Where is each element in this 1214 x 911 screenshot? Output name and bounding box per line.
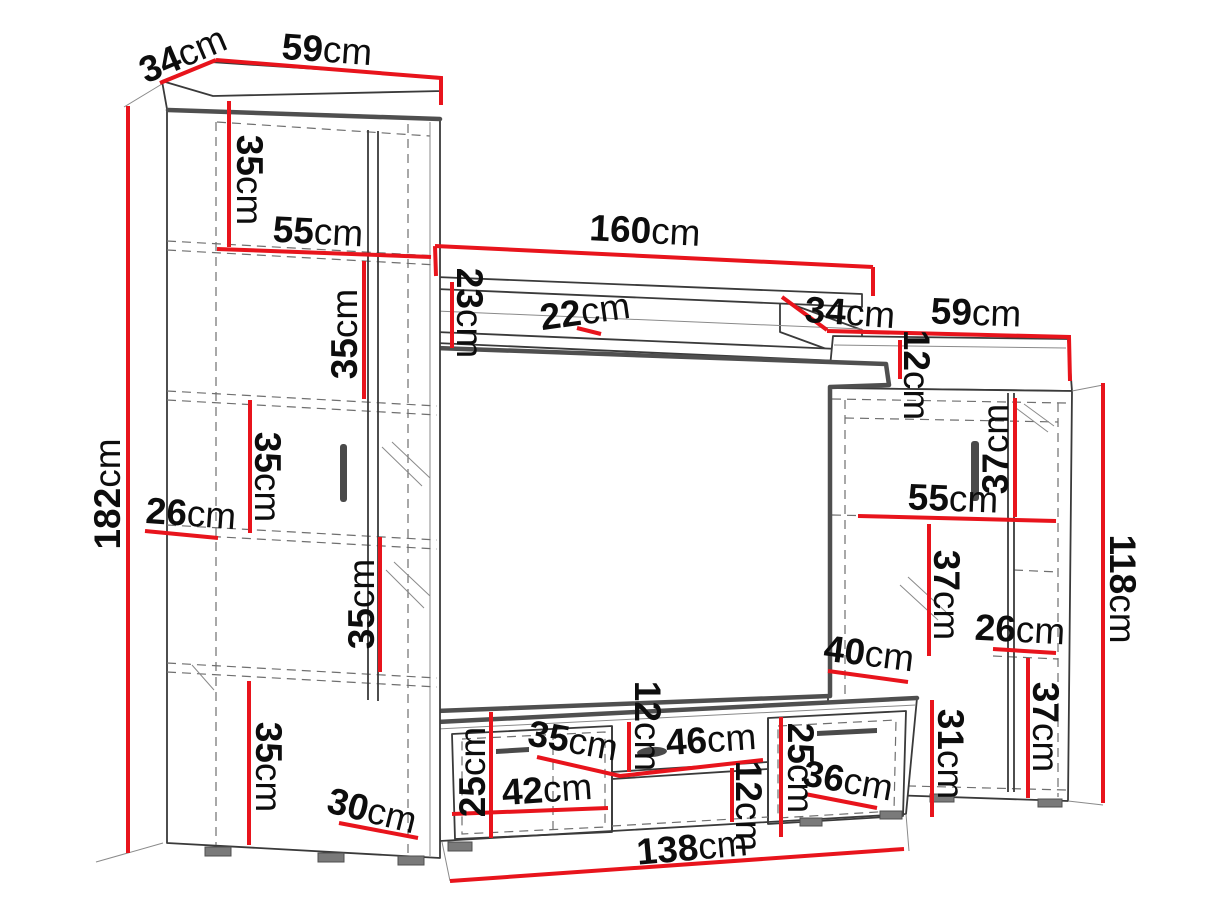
dim-label-23: 23cm: [449, 268, 490, 358]
stand-foot-right: [880, 811, 902, 819]
dim-label-59-left: 59cm: [280, 26, 373, 73]
dim-label-35-c: 35cm: [247, 432, 288, 522]
right-cabinet-foot-right: [1038, 799, 1062, 807]
left-cabinet-foot-left: [205, 847, 231, 856]
dim-label-25-right: 25cm: [780, 723, 821, 813]
diagram-canvas: 34cm 59cm 35cm 55cm 35cm 182cm 26cm 35cm…: [0, 0, 1214, 911]
stand-foot-left: [448, 842, 472, 851]
dim-label-12-b: 12cm: [627, 681, 668, 771]
left-cabinet-foot-mid: [318, 853, 344, 862]
dim-label-55-right: 55cm: [907, 476, 999, 520]
dim-label-26-left: 26cm: [144, 490, 237, 537]
dim-label-34-right: 34cm: [803, 289, 896, 336]
dim-label-12-a: 12cm: [896, 330, 937, 420]
tv-panel-outline: [436, 348, 889, 711]
dim-label-118: 118cm: [1102, 534, 1143, 643]
dim-label-55-left: 55cm: [272, 209, 365, 255]
dim-label-182: 182cm: [87, 438, 128, 549]
dim-label-31: 31cm: [930, 709, 971, 799]
dim-label-42: 42cm: [500, 766, 593, 813]
left-cabinet-foot-right: [398, 856, 424, 865]
left-cabinet: [162, 62, 442, 865]
dim-label-25-left: 25cm: [452, 727, 493, 817]
dim-label-37-b: 37cm: [926, 550, 967, 640]
wall-shelf-top-board: [436, 277, 862, 307]
dim-label-35-e: 35cm: [248, 722, 289, 812]
dim-label-35-d: 35cm: [341, 559, 382, 649]
dim-label-160: 160cm: [588, 207, 701, 254]
dim-label-26-right: 26cm: [974, 607, 1067, 653]
stand-foot-mid: [800, 818, 822, 826]
left-cabinet-door-handle: [340, 444, 347, 502]
dim-label-35-a: 35cm: [229, 135, 270, 225]
tv-panel: [436, 348, 889, 711]
dim-label-59-right: 59cm: [930, 290, 1022, 334]
dim-label-46: 46cm: [664, 716, 757, 763]
furniture-dimension-diagram: 34cm 59cm 35cm 55cm 35cm 182cm 26cm 35cm…: [0, 0, 1214, 911]
dim-label-35-b: 35cm: [324, 289, 365, 379]
dim-label-138: 138cm: [635, 822, 749, 873]
dim-label-37-c: 37cm: [1025, 682, 1066, 772]
